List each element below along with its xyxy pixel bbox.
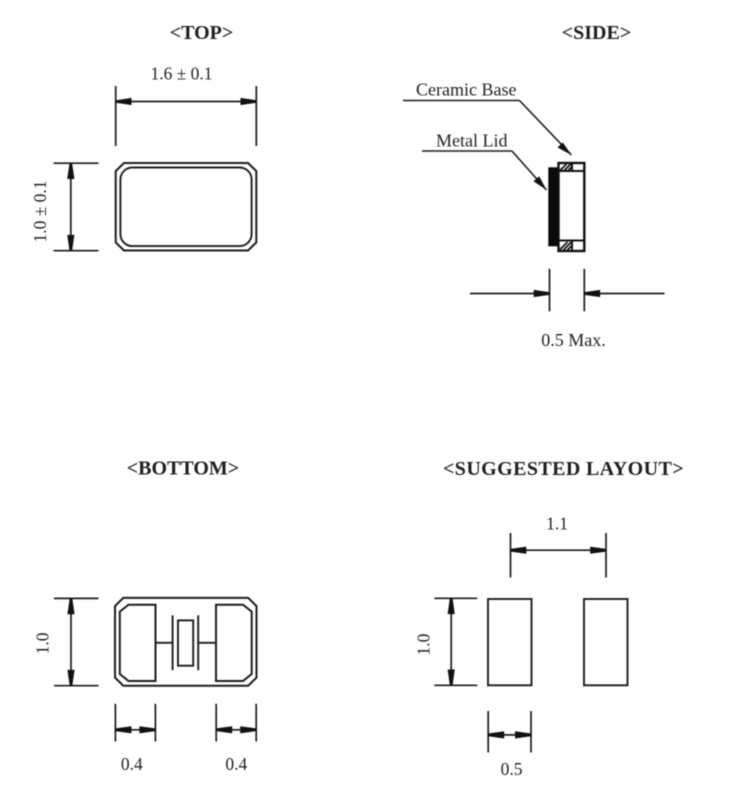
svg-text:1.6 ± 0.1: 1.6 ± 0.1 bbox=[150, 64, 212, 84]
svg-text:<TOP>: <TOP> bbox=[170, 22, 234, 44]
svg-text:1.0: 1.0 bbox=[413, 633, 433, 655]
svg-text:0.5 Max.: 0.5 Max. bbox=[541, 330, 606, 350]
svg-text:1.1: 1.1 bbox=[546, 514, 568, 534]
svg-text:<SUGGESTED LAYOUT>: <SUGGESTED LAYOUT> bbox=[443, 458, 684, 480]
svg-text:0.5: 0.5 bbox=[501, 759, 523, 779]
svg-text:Ceramic Base: Ceramic Base bbox=[416, 80, 516, 100]
svg-text:1.0 ± 0.1: 1.0 ± 0.1 bbox=[30, 180, 50, 242]
svg-text:0.4: 0.4 bbox=[121, 754, 143, 774]
svg-text:<SIDE>: <SIDE> bbox=[562, 22, 631, 44]
svg-text:1.0: 1.0 bbox=[32, 632, 52, 654]
svg-text:Metal Lid: Metal Lid bbox=[436, 131, 507, 151]
svg-text:<BOTTOM>: <BOTTOM> bbox=[127, 458, 239, 480]
svg-text:0.4: 0.4 bbox=[225, 754, 247, 774]
